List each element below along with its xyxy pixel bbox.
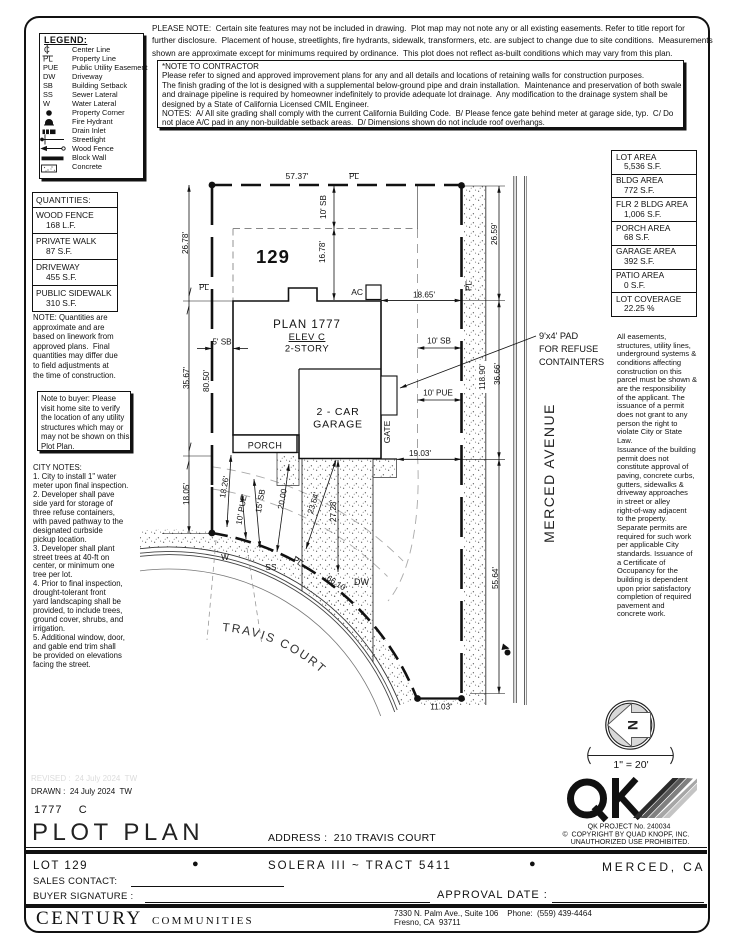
svg-text:© COPYRIGHT BY QUAD KNOPF, IN: © COPYRIGHT BY QUAD KNOPF, INC. bbox=[562, 831, 689, 839]
svg-text:UNAUTHORIZED USE PROHIBITED.: UNAUTHORIZED USE PROHIBITED. bbox=[571, 839, 690, 846]
svg-text:TRAVIS COURT: TRAVIS COURT bbox=[222, 620, 330, 676]
svg-text:36.66': 36.66' bbox=[493, 363, 502, 385]
svg-text:55.64': 55.64' bbox=[491, 567, 500, 589]
svg-text:QK PROJECT No. 240034: QK PROJECT No. 240034 bbox=[588, 824, 671, 831]
svg-text:10' SB: 10' SB bbox=[319, 195, 328, 219]
svg-text:2-STORY: 2-STORY bbox=[285, 344, 329, 355]
svg-text:10' PUE: 10' PUE bbox=[423, 389, 453, 398]
svg-text:AC: AC bbox=[351, 287, 363, 297]
svg-text:26.59': 26.59' bbox=[490, 223, 499, 245]
svg-text:GARAGE: GARAGE bbox=[313, 419, 363, 431]
svg-text:35.67': 35.67' bbox=[182, 367, 191, 389]
svg-text:PLAN 1777: PLAN 1777 bbox=[273, 319, 341, 331]
svg-text:57.37': 57.37' bbox=[286, 171, 309, 181]
svg-text:2 - CAR: 2 - CAR bbox=[317, 406, 360, 418]
svg-text:N: N bbox=[625, 720, 641, 730]
svg-text:19.03': 19.03' bbox=[409, 449, 431, 458]
svg-text:11.03': 11.03' bbox=[430, 703, 452, 712]
svg-text:18.65': 18.65' bbox=[413, 291, 435, 300]
svg-text:10' SB: 10' SB bbox=[427, 337, 451, 346]
svg-text:W: W bbox=[221, 553, 229, 562]
svg-text:CONTAINTERS: CONTAINTERS bbox=[539, 357, 604, 367]
svg-text:129: 129 bbox=[256, 246, 290, 267]
svg-text:5' SB: 5' SB bbox=[212, 338, 232, 347]
svg-text:MERCED AVENUE: MERCED AVENUE bbox=[541, 403, 557, 543]
svg-text:GATE: GATE bbox=[382, 420, 392, 443]
svg-text:20.00: 20.00 bbox=[276, 488, 288, 510]
svg-text:15' SB: 15' SB bbox=[254, 488, 267, 514]
svg-text:118.90': 118.90' bbox=[478, 364, 487, 390]
svg-text:10' PUE: 10' PUE bbox=[234, 494, 248, 525]
svg-text:80.50': 80.50' bbox=[202, 370, 211, 392]
svg-text:18.05': 18.05' bbox=[182, 483, 191, 505]
svg-text:SS: SS bbox=[266, 563, 277, 572]
svg-text:PORCH: PORCH bbox=[248, 441, 283, 451]
svg-text:1" = 20': 1" = 20' bbox=[613, 759, 648, 771]
svg-text:16.78': 16.78' bbox=[318, 241, 327, 263]
svg-text:9'x4' PAD: 9'x4' PAD bbox=[539, 331, 578, 341]
svg-text:DW: DW bbox=[354, 577, 369, 587]
svg-text:FOR REFUSE: FOR REFUSE bbox=[539, 344, 598, 354]
svg-text:ELEV C: ELEV C bbox=[289, 332, 326, 343]
svg-text:27.28': 27.28' bbox=[329, 500, 338, 522]
svg-text:26.78': 26.78' bbox=[181, 232, 190, 254]
